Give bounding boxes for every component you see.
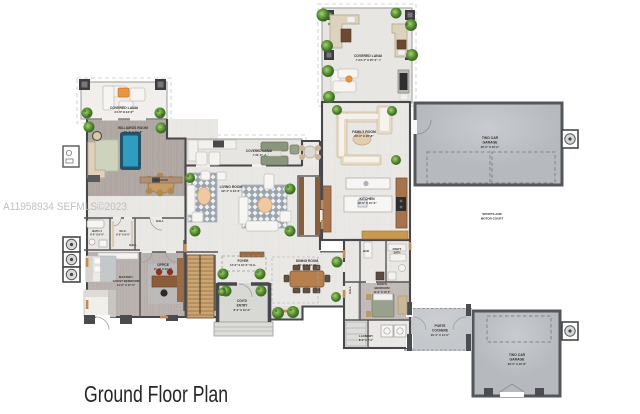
svg-text:11'-0" X 12'-0": 11'-0" X 12'-0" <box>373 290 391 294</box>
svg-text:TWO CAR: TWO CAR <box>509 353 526 357</box>
svg-text:LAUNDRY: LAUNDRY <box>359 334 373 338</box>
svg-text:GARAGE: GARAGE <box>483 141 499 145</box>
svg-text:W.I.C.: W.I.C. <box>119 229 127 233</box>
svg-text:16'-4" X 12'-0": 16'-4" X 12'-0" <box>298 263 317 267</box>
svg-text:8'-0" X 7'-0": 8'-0" X 7'-0" <box>359 338 374 342</box>
svg-text:23'-4" X 14'-0": 23'-4" X 14'-0" <box>431 333 450 337</box>
svg-text:↗ 31'-0" ↗: ↗ 31'-0" ↗ <box>252 153 266 157</box>
svg-text:26'-0" X 20'-8": 26'-0" X 20'-8" <box>508 362 527 366</box>
svg-text:14'-0" X 10'-0" CLG.: 14'-0" X 10'-0" CLG. <box>230 263 256 267</box>
svg-text:TWO CAR: TWO CAR <box>482 136 499 140</box>
svg-text:COCHERE: COCHERE <box>432 329 448 333</box>
svg-text:23'-4" X 19'-8": 23'-4" X 19'-8" <box>123 130 143 134</box>
svg-text:BATH 4: BATH 4 <box>92 229 102 233</box>
svg-text:Ground Floor Plan: Ground Floor Plan <box>84 381 228 407</box>
svg-text:SPORTS AND: SPORTS AND <box>482 212 502 216</box>
svg-text:8'-0" X 10'-0": 8'-0" X 10'-0" <box>233 308 251 312</box>
svg-text:BEDROOM: BEDROOM <box>374 286 390 290</box>
svg-text:6'-0" X 9'-0": 6'-0" X 9'-0" <box>90 234 105 237</box>
svg-text:26'-0" X 23'-0": 26'-0" X 23'-0" <box>481 145 500 149</box>
svg-text:GARAGE: GARAGE <box>510 358 526 362</box>
svg-text:HALL: HALL <box>348 286 352 294</box>
svg-text:BATH: BATH <box>394 252 401 255</box>
svg-text:20'-0" X 20'-8": 20'-0" X 20'-8" <box>354 134 374 138</box>
svg-text:A11958934 SEFMLS©2023: A11958934 SEFMLS©2023 <box>3 201 127 213</box>
svg-text:11'-0" X 12'-0": 11'-0" X 12'-0" <box>154 267 173 271</box>
svg-text:6'-0" X 9'-0": 6'-0" X 9'-0" <box>116 234 131 237</box>
svg-text:18'-0" X 15'-0": 18'-0" X 15'-0" <box>357 201 377 205</box>
svg-text:HALL: HALL <box>129 243 137 247</box>
svg-text:COV'D: COV'D <box>237 299 248 303</box>
svg-text:24'-0" X 14'-0": 24'-0" X 14'-0" <box>114 110 134 114</box>
svg-text:↗ 24'-4" X 25'-0" ↗: ↗ 24'-4" X 25'-0" ↗ <box>355 58 381 62</box>
svg-text:22'-4" X 24'-0": 22'-4" X 24'-0" <box>221 189 241 193</box>
svg-text:MOTOR COURT: MOTOR COURT <box>481 217 504 221</box>
svg-text:BKF. NOOK: BKF. NOOK <box>154 178 168 182</box>
svg-text:ENTRY: ENTRY <box>237 304 249 308</box>
svg-text:BAR: BAR <box>363 249 369 253</box>
svg-text:HALL: HALL <box>156 219 164 223</box>
svg-text:14'-0" X 17'-0": 14'-0" X 17'-0" <box>117 283 136 287</box>
svg-text:PORTE: PORTE <box>435 324 446 328</box>
